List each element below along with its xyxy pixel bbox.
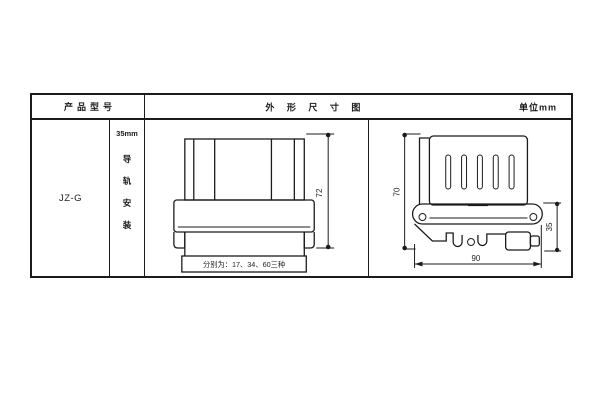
product-model-value: JZ-G xyxy=(59,193,82,204)
cell-mounting-type: 35mm 导 轨 安 装 xyxy=(110,120,145,276)
front-left-tab xyxy=(174,232,185,248)
side-body-step xyxy=(420,138,430,204)
side-view-drawing: 70 35 90 xyxy=(369,120,571,276)
side-height-dim-label: 70 xyxy=(393,187,402,196)
rail-teeth-profile xyxy=(478,234,506,246)
header-cell-product-model: 产品型号 xyxy=(32,95,145,118)
front-view-drawing: 分别为：17、34、60三种 72 xyxy=(145,120,368,276)
rail-mount-char: 安 xyxy=(123,192,132,214)
cell-front-view: 分别为：17、34、60三种 72 xyxy=(145,120,369,276)
front-note-text: 分别为：17、34、60三种 xyxy=(203,260,285,269)
clamp-screw-right xyxy=(530,214,537,221)
rail-mount-char: 装 xyxy=(123,214,132,236)
rail-mount-char: 轨 xyxy=(123,170,132,192)
rail-mount-char: 导 xyxy=(123,148,132,170)
rail-hook-profile xyxy=(415,224,463,247)
header-cell-outline-diagram: 外 形 尺 寸 图 单位mm xyxy=(145,95,571,118)
table-body-row: JZ-G 35mm 导 轨 安 装 xyxy=(32,120,571,276)
side-width-dim-label: 90 xyxy=(472,254,481,263)
front-body-outline xyxy=(185,139,304,200)
side-clamp-dim-label: 35 xyxy=(545,222,554,231)
product-model-header-label: 产品型号 xyxy=(60,100,116,113)
side-body-outline xyxy=(429,136,527,205)
drawing-sheet: 产品型号 外 形 尺 寸 图 单位mm JZ-G 35mm 导 轨 安 装 xyxy=(0,0,600,400)
front-height-dim-label: 72 xyxy=(315,188,324,197)
unit-label: 单位mm xyxy=(519,100,557,113)
clamp-screw-left xyxy=(419,214,426,221)
rail-mount-vertical-text: 导 轨 安 装 xyxy=(123,148,132,236)
din-clamp-outline xyxy=(413,204,543,224)
rail-latch-block xyxy=(506,232,531,250)
table-header-row: 产品型号 外 形 尺 寸 图 单位mm xyxy=(32,95,571,120)
rail-size-label: 35mm xyxy=(116,129,138,138)
outline-diagram-title: 外 形 尺 寸 图 xyxy=(265,100,365,113)
cell-side-view: 70 35 90 xyxy=(369,120,571,276)
cell-product-model: JZ-G xyxy=(32,120,110,276)
front-right-tab xyxy=(304,232,314,248)
rail-latch-tab xyxy=(530,236,539,246)
spec-table: 产品型号 外 形 尺 寸 图 单位mm JZ-G 35mm 导 轨 安 装 xyxy=(30,93,573,278)
vent-slots xyxy=(446,155,514,189)
